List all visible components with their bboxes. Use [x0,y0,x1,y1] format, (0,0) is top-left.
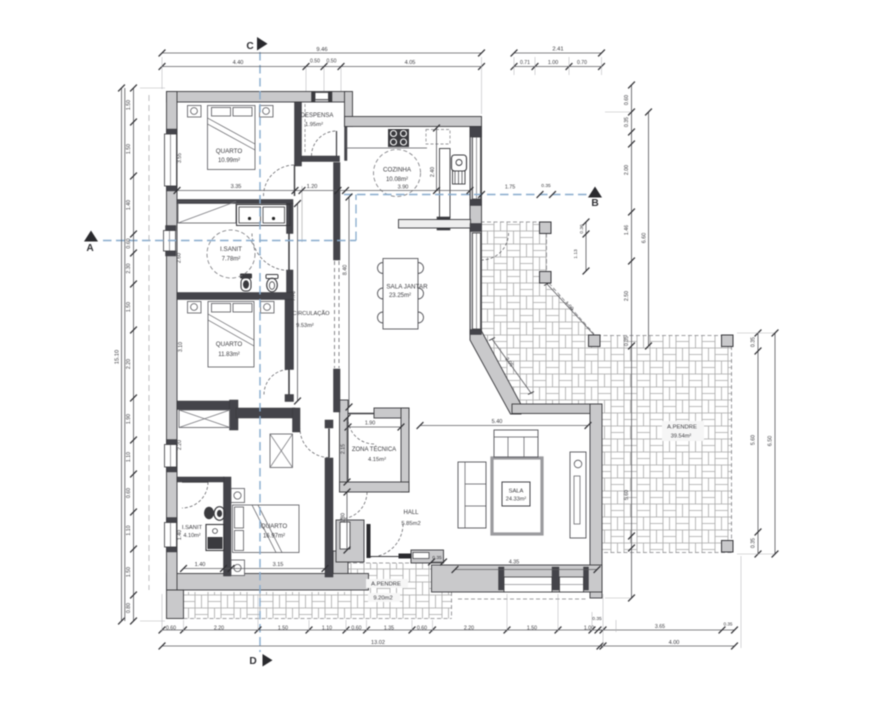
svg-text:SALA: SALA [509,489,524,495]
svg-text:2.40: 2.40 [430,167,436,177]
svg-text:4.05: 4.05 [405,60,416,66]
svg-text:2.20: 2.20 [177,440,183,450]
svg-text:I.SANIT: I.SANIT [182,525,203,531]
svg-text:ZONA TÉCNICA: ZONA TÉCNICA [352,446,396,453]
svg-text:2.20: 2.20 [126,359,132,369]
svg-text:1.40: 1.40 [177,530,183,540]
svg-text:0.35: 0.35 [751,337,757,347]
svg-text:1.40: 1.40 [126,200,132,210]
svg-text:3.15: 3.15 [273,562,284,568]
svg-text:SALA JANTAR: SALA JANTAR [386,284,428,291]
svg-text:A.PENDRE: A.PENDRE [371,582,401,588]
svg-text:1.90: 1.90 [126,414,132,424]
svg-text:HALL: HALL [403,510,419,516]
svg-text:1.50: 1.50 [278,626,288,632]
svg-text:0.35: 0.35 [624,117,630,127]
svg-text:11.83m²: 11.83m² [218,352,240,358]
svg-text:1.75: 1.75 [505,185,515,191]
svg-text:3.65: 3.65 [655,624,665,630]
svg-text:15.10: 15.10 [115,350,121,365]
svg-text:0.50: 0.50 [327,59,337,65]
svg-text:4.15m²: 4.15m² [368,457,386,463]
svg-text:0.70: 0.70 [577,60,587,66]
svg-text:0.35: 0.35 [592,616,602,622]
svg-text:9.53m²: 9.53m² [296,323,314,329]
svg-text:7.73: 7.73 [291,291,297,301]
svg-text:2.00: 2.00 [624,165,630,175]
svg-text:3.55: 3.55 [177,153,183,163]
svg-text:0.35: 0.35 [541,183,551,189]
svg-text:1.10: 1.10 [322,626,332,632]
svg-text:5.60: 5.60 [624,490,630,500]
svg-text:QUARTO: QUARTO [216,341,243,348]
svg-text:1.40: 1.40 [195,562,206,568]
svg-text:1.50: 1.50 [126,144,132,154]
svg-text:C: C [246,41,254,52]
svg-text:B: B [591,198,598,209]
svg-text:1.50: 1.50 [126,302,132,312]
svg-text:4.35: 4.35 [509,560,520,566]
svg-text:1.50: 1.50 [527,626,537,632]
svg-text:8.40: 8.40 [343,265,349,276]
svg-text:9.46: 9.46 [316,47,327,53]
svg-text:10.99m²: 10.99m² [218,158,240,164]
svg-text:0.35: 0.35 [751,538,757,548]
svg-text:1.10: 1.10 [126,525,132,535]
svg-text:5.40: 5.40 [492,419,503,425]
svg-text:0.36: 0.36 [579,224,585,234]
svg-text:1.80: 1.80 [341,513,347,523]
svg-text:0.60: 0.60 [166,626,176,632]
svg-text:2.15: 2.15 [341,444,347,454]
svg-text:2.20: 2.20 [464,626,474,632]
svg-text:0.80: 0.80 [126,603,132,613]
svg-text:CIRCULAÇÃO: CIRCULAÇÃO [292,310,330,317]
svg-text:3.90: 3.90 [398,185,409,191]
svg-text:1.50: 1.50 [126,567,132,577]
svg-text:9.20m2: 9.20m2 [373,596,392,602]
svg-text:7.78m²: 7.78m² [222,257,241,263]
svg-text:DESPENSA: DESPENSA [301,113,334,119]
svg-text:1.35: 1.35 [384,626,394,632]
svg-text:0.50: 0.50 [310,59,320,65]
svg-text:1.90: 1.90 [365,421,375,427]
svg-text:1.00: 1.00 [548,60,558,66]
svg-text:2.50: 2.50 [624,291,630,301]
svg-text:4.10m²: 4.10m² [183,533,200,539]
svg-text:16.97m²: 16.97m² [263,534,285,540]
svg-text:13.02: 13.02 [371,640,385,646]
svg-text:6.60: 6.60 [642,233,648,244]
svg-text:0.35: 0.35 [723,622,732,627]
svg-text:QUARTO: QUARTO [216,148,243,155]
svg-text:0.35: 0.35 [624,336,630,346]
svg-text:3.10: 3.10 [178,342,184,352]
svg-text:1.46: 1.46 [624,225,630,235]
svg-text:D: D [249,656,256,667]
svg-text:1.95m²: 1.95m² [305,122,323,128]
svg-text:0.60: 0.60 [417,626,427,632]
svg-text:3.35: 3.35 [231,184,242,190]
svg-text:COZINHA: COZINHA [383,167,412,174]
svg-text:0.60: 0.60 [351,626,361,632]
svg-text:0.71: 0.71 [520,60,530,66]
svg-text:A: A [86,243,94,254]
svg-text:QUARTO: QUARTO [261,523,288,530]
svg-text:2.60: 2.60 [177,253,183,263]
svg-text:1.20: 1.20 [307,184,318,190]
svg-text:24.33m²: 24.33m² [506,497,527,503]
svg-text:1.13: 1.13 [573,249,579,259]
svg-text:6.50: 6.50 [768,436,774,447]
svg-text:1.00: 1.00 [584,626,594,632]
svg-text:2.30: 2.30 [126,263,132,273]
svg-text:0.60: 0.60 [126,488,132,498]
svg-text:10.08m²: 10.08m² [386,177,408,183]
svg-text:A.PENDRE: A.PENDRE [667,425,697,431]
svg-text:2.41: 2.41 [552,47,563,53]
svg-text:5.60: 5.60 [751,435,757,445]
svg-text:I.SANIT: I.SANIT [220,246,242,253]
svg-text:23.25m²: 23.25m² [389,293,411,299]
svg-text:4.40: 4.40 [233,60,244,66]
svg-text:1.10: 1.10 [126,452,132,462]
svg-text:4.00: 4.00 [669,640,680,646]
svg-text:0.60: 0.60 [624,95,630,105]
svg-text:2.20: 2.20 [214,626,224,632]
svg-text:0.35: 0.35 [432,555,442,561]
svg-text:5.85m2: 5.85m2 [401,521,420,527]
svg-text:0.60: 0.60 [126,238,132,248]
svg-text:39.54m²: 39.54m² [671,434,692,440]
svg-text:1.50: 1.50 [126,100,132,110]
